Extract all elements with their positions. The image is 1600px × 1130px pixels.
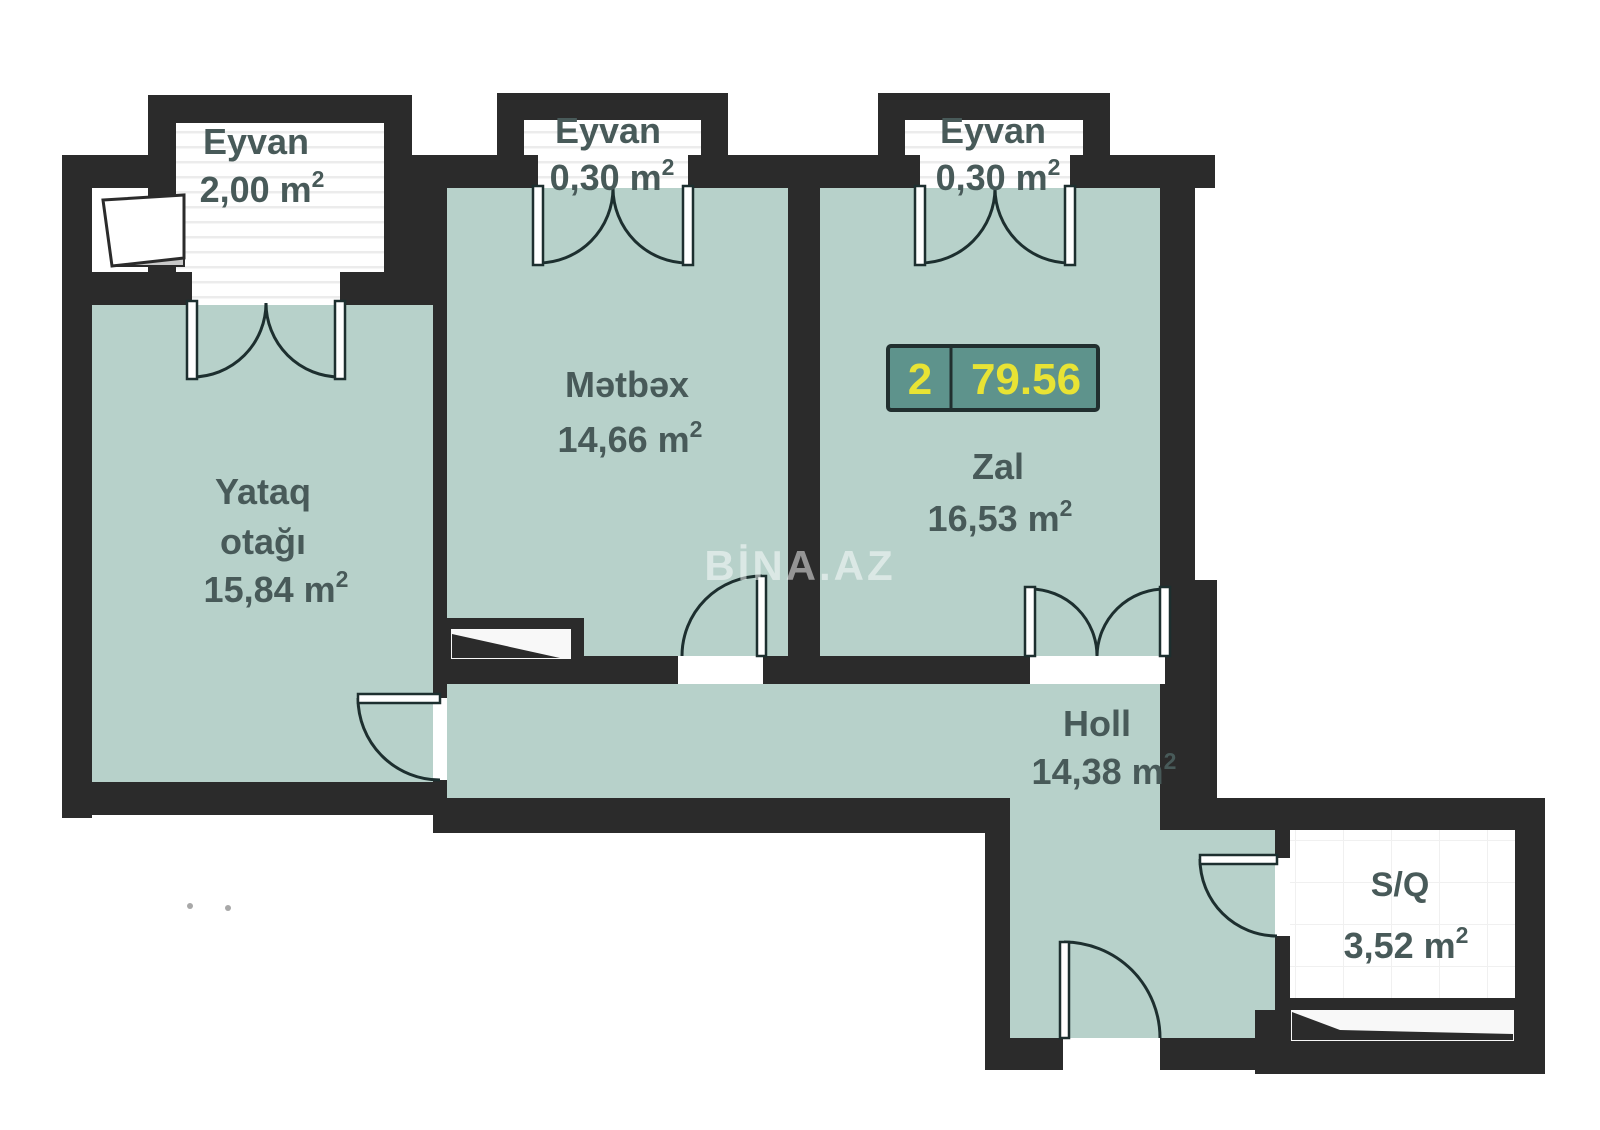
wall-segment (701, 93, 728, 188)
bathroom-floor (1290, 830, 1515, 998)
balcony3-area: 0,30 m2 (936, 154, 1061, 198)
wall-segment (788, 188, 820, 684)
hall-floor (447, 684, 1275, 1038)
watermark: BİNA.AZ (704, 542, 895, 589)
wall-segment (340, 272, 447, 305)
wall-segment (985, 798, 1010, 1070)
wall-segment (62, 155, 150, 188)
door-leaf (683, 186, 693, 265)
wall-segment (148, 95, 412, 123)
bedroom-label-line2: otağı (220, 521, 306, 562)
bathroom-area: 3,52 m2 (1344, 922, 1469, 966)
balcony1-door-gap (192, 272, 340, 305)
bedroom-door-gap (433, 698, 447, 780)
stray-mark (225, 905, 231, 911)
balcony1-area: 2,00 m2 (200, 166, 325, 210)
door-leaf (533, 186, 543, 265)
kitchen-label: Mətbəx (565, 364, 689, 405)
floor-plan: Eyvan 2,00 m2 Eyvan 0,30 m2 Eyvan 0,30 m… (0, 0, 1600, 1130)
open-window-leaf (103, 195, 184, 266)
door-leaf (1065, 186, 1075, 265)
door-leaf (1160, 587, 1170, 656)
living-area: 16,53 m2 (928, 495, 1073, 539)
wall-segment (1160, 155, 1195, 600)
listing-badge: 2 79.56 (888, 346, 1098, 410)
wall-segment (1280, 998, 1515, 1010)
balcony3-label: Eyvan (940, 110, 1046, 151)
wall-segment (92, 272, 192, 305)
wall-segment (62, 782, 447, 815)
wall-segment (985, 1038, 1063, 1070)
hall-area: 14,38 m2 (1032, 748, 1177, 792)
kitchen-door-gap (678, 656, 763, 684)
door-leaf (358, 694, 440, 703)
living-label: Zal (972, 446, 1024, 487)
kitchen-area: 14,66 m2 (558, 416, 703, 460)
balcony1-label: Eyvan (203, 121, 309, 162)
wall-segment (1193, 798, 1545, 830)
room-floors (92, 188, 1275, 1038)
wall-segment (1515, 798, 1545, 1074)
wall-segment (62, 155, 92, 818)
door-leaf (1025, 587, 1035, 656)
wall-segment (878, 93, 905, 188)
hall-label: Holl (1063, 703, 1131, 744)
balcony2-area: 0,30 m2 (550, 154, 675, 198)
badge-room-count: 2 (908, 355, 932, 404)
wall-segment (148, 95, 176, 202)
bathroom-door-gap (1275, 858, 1290, 936)
wall-segment (1255, 1042, 1545, 1074)
badge-total-area: 79.56 (971, 355, 1081, 404)
door-leaf (187, 301, 197, 379)
bedroom-area: 15,84 m2 (204, 566, 349, 610)
entrance-door-gap (1063, 1038, 1160, 1070)
balcony2-label: Eyvan (555, 110, 661, 151)
wall-segment (1083, 93, 1110, 188)
bathroom-label: S/Q (1371, 866, 1430, 904)
stray-mark (187, 903, 193, 909)
wall-segment (1165, 656, 1195, 684)
door-leaf (1060, 942, 1069, 1038)
door-leaf (1200, 855, 1277, 864)
living-door-gap (1030, 656, 1165, 684)
wall-segment (497, 93, 524, 188)
wall-segment (763, 656, 1030, 684)
door-leaf (915, 186, 925, 265)
door-leaf (335, 301, 345, 379)
bedroom-label-line1: Yataq (215, 471, 311, 512)
wall-segment (433, 798, 1010, 833)
